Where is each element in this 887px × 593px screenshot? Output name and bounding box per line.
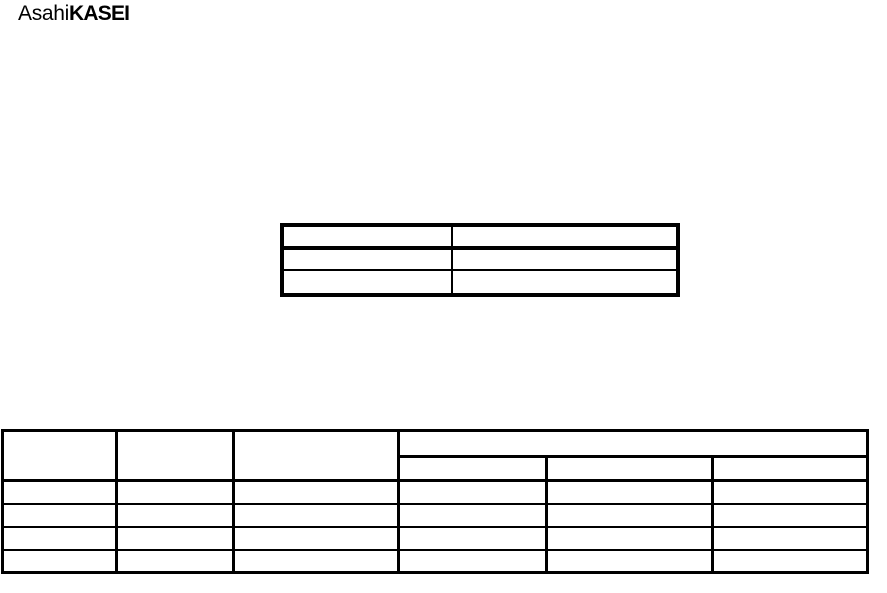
- main-table-cell: [713, 550, 868, 573]
- info-table-cell: [452, 248, 678, 270]
- main-table-row: [3, 550, 868, 573]
- main-table-row: [3, 504, 868, 527]
- main-table-cell: [547, 527, 713, 550]
- main-table-cell: [399, 504, 547, 527]
- main-table-cell: [547, 504, 713, 527]
- info-table-row: [282, 248, 678, 270]
- main-table-cell: [3, 527, 117, 550]
- main-table-cell: [547, 481, 713, 504]
- document-page: AsahiKASEI: [0, 0, 887, 593]
- main-table-cell: [713, 504, 868, 527]
- main-table-cell: [234, 527, 399, 550]
- main-table-cell: [234, 481, 399, 504]
- info-table-cell: [282, 225, 452, 248]
- main-table-cell: [713, 481, 868, 504]
- main-table-cell: [3, 550, 117, 573]
- main-table-cell: [234, 550, 399, 573]
- info-table-row: [282, 270, 678, 295]
- main-table-row: [3, 481, 868, 504]
- main-table-header-cell: [234, 431, 399, 481]
- info-table-cell: [282, 270, 452, 295]
- main-table-cell: [117, 550, 234, 573]
- main-table-subheader-cell: [547, 457, 713, 481]
- info-table: [280, 223, 680, 297]
- main-table-header-row-top: [3, 431, 868, 457]
- main-table-header-cell: [3, 431, 117, 481]
- main-table-cell: [117, 527, 234, 550]
- main-table-row: [3, 527, 868, 550]
- main-table-cell: [117, 481, 234, 504]
- main-table: [1, 429, 869, 574]
- info-table-cell: [452, 225, 678, 248]
- main-table-cell: [547, 550, 713, 573]
- main-table-cell: [399, 550, 547, 573]
- main-table-cell: [3, 504, 117, 527]
- main-table-cell: [117, 504, 234, 527]
- info-table-cell: [452, 270, 678, 295]
- logo-bold-text: KASEI: [69, 2, 129, 25]
- main-table-cell: [234, 504, 399, 527]
- asahi-kasei-logo: AsahiKASEI: [18, 2, 129, 25]
- main-table-cell: [3, 481, 117, 504]
- main-table-header-cell: [117, 431, 234, 481]
- info-table-header-row: [282, 225, 678, 248]
- main-table-subheader-cell: [399, 457, 547, 481]
- info-table-cell: [282, 248, 452, 270]
- main-table-subheader-cell: [713, 457, 868, 481]
- main-table-cell: [399, 481, 547, 504]
- logo-regular-text: Asahi: [18, 2, 69, 25]
- main-table-cell: [713, 527, 868, 550]
- main-table-merged-header-cell: [399, 431, 868, 457]
- main-table-cell: [399, 527, 547, 550]
